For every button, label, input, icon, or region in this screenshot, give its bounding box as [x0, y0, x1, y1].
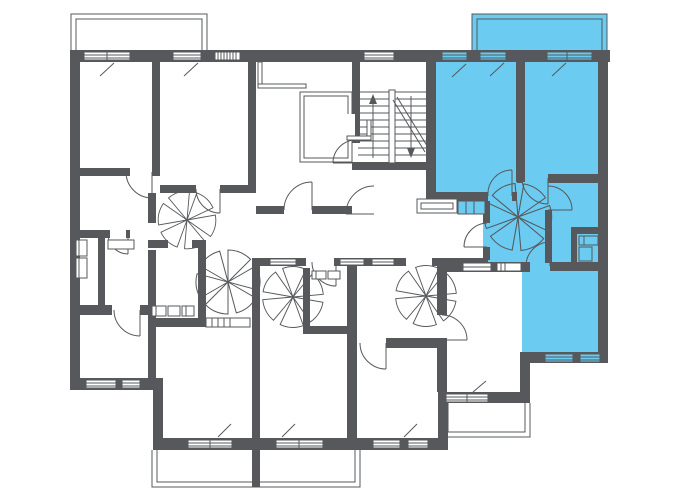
highlighted-bedroom-fill — [522, 262, 606, 360]
balcony-bottom-right — [443, 403, 530, 437]
floor-plan — [0, 0, 680, 500]
balcony-top-left — [71, 14, 207, 50]
highlighted-balcony-fill — [472, 14, 607, 52]
